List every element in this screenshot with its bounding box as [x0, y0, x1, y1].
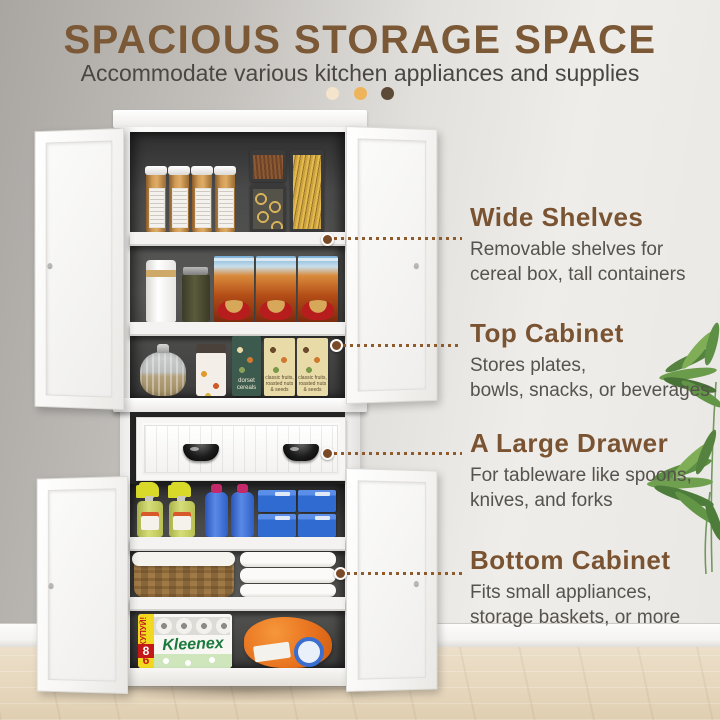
door-panel [46, 140, 113, 397]
tissue-pack: Kleenex КУПУЙ! 8 6 [138, 614, 232, 668]
tissue-brand-label: Kleenex [154, 635, 232, 656]
spaghetti-container [290, 150, 324, 232]
top-right-door [346, 126, 437, 404]
page-title: SPACIOUS STORAGE SPACE [0, 18, 720, 63]
storage-box-blue [258, 514, 296, 537]
top-left-door [35, 128, 124, 410]
bag-label [253, 642, 291, 663]
shelf-board [130, 322, 345, 336]
folded-towel [240, 552, 336, 567]
pickle-jar [182, 274, 210, 322]
marker-large-drawer [321, 447, 334, 460]
shelf-board [130, 232, 345, 246]
cereal-bowl-art [302, 300, 334, 320]
door-panel [48, 488, 117, 681]
page-subtitle: Accommodate various kitchen appliances a… [0, 60, 720, 87]
callout-line: bowls, snacks, or beverages [470, 378, 710, 403]
cabinet-crown [113, 110, 367, 128]
detergent-bag [244, 617, 332, 668]
callout-line: storage baskets, or more [470, 605, 680, 630]
detergent-bottle [231, 492, 254, 537]
muesli-box-cream: classic fruits, roasted nuts & seeds [264, 338, 295, 396]
cereal-box-text [298, 258, 338, 261]
storage-box-blue [298, 490, 336, 512]
folded-towel [240, 568, 336, 583]
cereal-box-text [214, 258, 254, 261]
callout-line: knives, and forks [470, 488, 692, 513]
dot-amber [354, 87, 367, 100]
tissue-promo-text: КУПУЙ! [139, 616, 148, 646]
canister-lid [196, 344, 226, 353]
callout-line: For tableware like spoons, [470, 463, 692, 488]
wicker-basket [134, 558, 234, 597]
pasta-container [250, 150, 286, 182]
detergent-bottle [205, 492, 228, 537]
pasta-rings-fill [253, 189, 283, 229]
muesli-box-green: dorset cereals [232, 336, 261, 396]
drawer-front [136, 417, 346, 481]
folded-towel [240, 584, 336, 597]
muesli-box-cream: classic fruits, roasted nuts & seeds [297, 338, 328, 396]
spray-bottle [137, 482, 163, 537]
tissue-flower-band [154, 654, 232, 668]
callout-line: Stores plates, [470, 353, 710, 378]
canister-band [146, 270, 176, 277]
spray-label [141, 512, 159, 530]
cabinet-base [120, 668, 360, 686]
tissue-promo-strip: КУПУЙ! 8 6 [138, 614, 154, 668]
spray-bottle [169, 482, 195, 537]
marker-top-cabinet [330, 339, 343, 352]
bottom-left-door [37, 476, 128, 694]
leader-line-top-cabinet [343, 344, 462, 347]
callout-wide-shelves: Wide Shelves Removable shelves for cerea… [470, 202, 685, 287]
door-knob [414, 581, 419, 586]
snack-jar [146, 166, 166, 232]
callout-title: Top Cabinet [470, 318, 710, 349]
marker-wide-shelves [321, 233, 334, 246]
callout-top-cabinet: Top Cabinet Stores plates, bowls, snacks… [470, 318, 710, 403]
accent-dots [0, 87, 720, 105]
callout-title: A Large Drawer [470, 428, 692, 459]
paper-rolls [154, 617, 230, 635]
storage-box-blue [298, 514, 336, 537]
glass-grain-jar [140, 352, 186, 396]
cereal-bowl-art [260, 300, 292, 320]
mid-counter [113, 398, 367, 412]
fruit-canister [196, 352, 226, 396]
dot-light [326, 87, 339, 100]
marker-bottom-cabinet [334, 567, 347, 580]
door-knob [414, 263, 419, 268]
jar-lid [183, 267, 208, 275]
shelf-board [130, 597, 345, 611]
bag-swirl-logo [294, 637, 324, 667]
cereal-box-text [256, 258, 296, 261]
storage-box-blue [258, 490, 296, 512]
door-knob [49, 583, 54, 588]
callout-bottom-cabinet: Bottom Cabinet Fits small appliances, st… [470, 545, 680, 630]
snack-jar [169, 166, 189, 232]
spray-trigger [171, 482, 191, 497]
basket-liner [132, 552, 235, 566]
callout-large-drawer: A Large Drawer For tableware like spoons… [470, 428, 692, 513]
tissue-promo-small-number: 6 [138, 653, 154, 667]
spaghetti-fill [253, 155, 283, 179]
muesli-brand-label: dorset cereals [232, 378, 261, 392]
door-knob [48, 263, 53, 268]
callout-line: Fits small appliances, [470, 580, 680, 605]
cereal-bowl-art [218, 300, 250, 320]
white-canister [146, 260, 176, 322]
leader-line-large-drawer [334, 452, 462, 455]
callout-title: Wide Shelves [470, 202, 685, 233]
cereal-box [214, 256, 254, 322]
leader-line-bottom-cabinet [347, 572, 462, 575]
snack-jar [192, 166, 212, 232]
shelf-board [130, 537, 345, 551]
callout-line: cereal box, tall containers [470, 262, 685, 287]
pasta-container [250, 184, 286, 232]
dot-dark [381, 87, 394, 100]
product-infographic: SPACIOUS STORAGE SPACE Accommodate vario… [0, 0, 720, 720]
callout-line: Removable shelves for [470, 237, 685, 262]
bottom-right-door [346, 468, 437, 692]
callout-title: Bottom Cabinet [470, 545, 680, 576]
leader-line-wide-shelves [334, 237, 462, 240]
snack-jar [215, 166, 235, 232]
muesli-variant-label: classic fruits, roasted nuts & seeds [297, 375, 328, 393]
spaghetti-fill [293, 155, 321, 229]
cereal-box [256, 256, 296, 322]
muesli-variant-label: classic fruits, roasted nuts & seeds [264, 375, 295, 393]
spray-trigger [139, 482, 159, 497]
spray-label [173, 512, 191, 530]
cereal-box [298, 256, 338, 322]
